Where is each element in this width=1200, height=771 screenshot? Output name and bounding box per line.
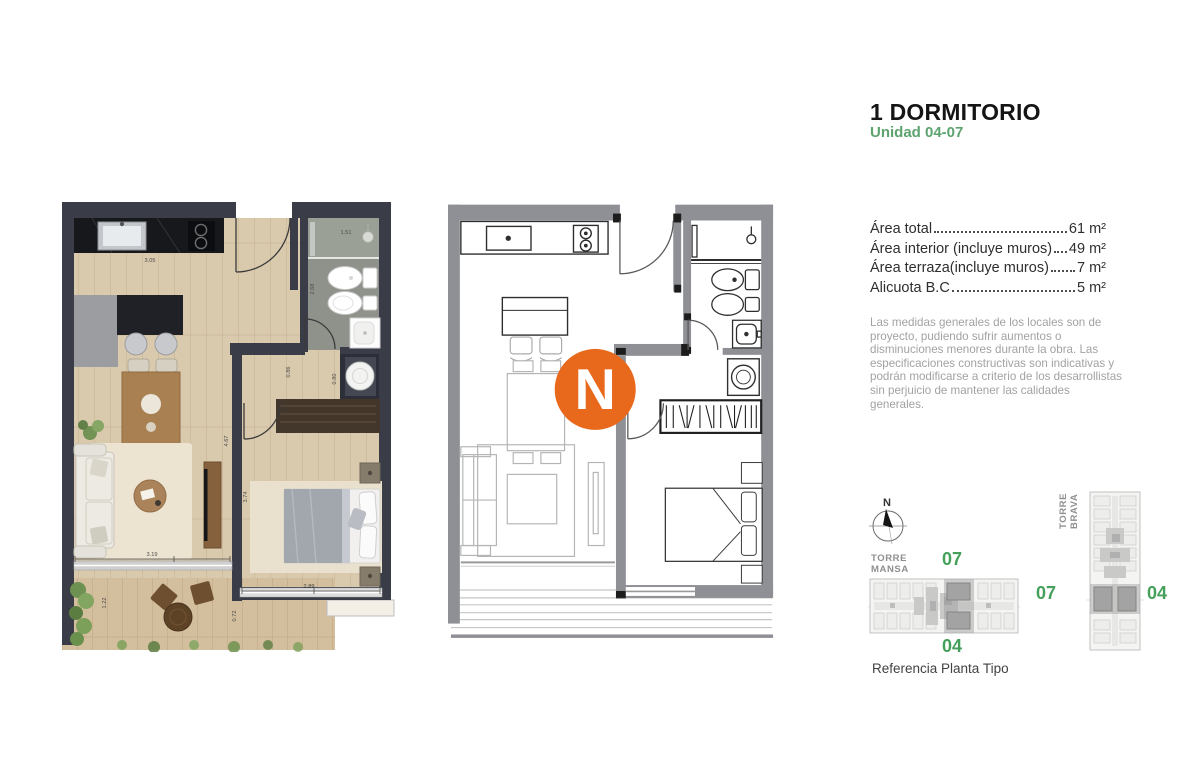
pillow-icon — [359, 526, 377, 559]
island — [502, 298, 567, 336]
nightstand — [741, 463, 762, 484]
shower-head-icon — [363, 232, 374, 243]
dim-laundry: 0.80 — [332, 374, 338, 385]
tv-icon — [204, 469, 208, 541]
terrace-edge — [451, 634, 773, 637]
unit-subtitle: Unidad 04-07 — [870, 124, 963, 141]
tower-mansa-label: TORRE MANSA — [871, 553, 909, 575]
area-label: Alicuota B.C — [870, 280, 950, 296]
page-title: 1 DORMITORIO — [870, 99, 1041, 126]
logo-letter: N — [575, 358, 616, 422]
reference-caption: Referencia Planta Tipo — [872, 661, 1009, 676]
area-label: Área interior (incluye muros) — [870, 241, 1052, 257]
dim-bath: 2.68 — [310, 284, 316, 295]
disclaimer-text: Las medidas generales de los locales son… — [870, 316, 1124, 411]
dotted-leader — [1054, 251, 1067, 253]
kitchen-cabinet — [74, 295, 118, 367]
washer-icon — [346, 362, 374, 390]
unit-07-brava: 07 — [1036, 583, 1056, 604]
terrace-table — [164, 603, 192, 631]
tower-mansa-diagram — [868, 575, 1020, 639]
area-row: Área total 61 m² — [870, 221, 1106, 241]
dim-terrace-depth: 1.22 — [102, 598, 108, 609]
dim-terrace-side: 0.72 — [232, 611, 238, 622]
bedroom — [660, 400, 762, 583]
dim-bedroom-length: 3.74 — [243, 492, 249, 503]
area-table: Área total 61 m² Área interior (incluye … — [870, 221, 1106, 299]
technical-floorplan: N — [448, 197, 778, 652]
unit-04-mansa: 04 — [942, 636, 962, 657]
unit-07-mansa: 07 — [942, 549, 962, 570]
stool-icon — [540, 337, 562, 354]
stool-icon — [155, 333, 177, 355]
bidet-icon — [712, 294, 744, 316]
tower-brava-label: TORRE BRAVA — [1058, 483, 1080, 529]
shower-bench — [310, 222, 315, 256]
compass: N — [867, 488, 913, 550]
dim-living-width: 3.19 — [147, 552, 158, 558]
shower-bench — [692, 225, 697, 257]
area-value: 49 m² — [1069, 241, 1106, 257]
unit-04-brava: 04 — [1147, 583, 1167, 604]
neighbor-terrace-outline — [327, 600, 394, 616]
brand-logo: N — [555, 349, 636, 430]
island — [117, 295, 183, 335]
area-value: 5 m² — [1077, 280, 1106, 296]
dining-area — [507, 361, 564, 464]
dotted-leader — [1051, 270, 1075, 272]
dim-shower: 1.51 — [341, 230, 352, 236]
dotted-leader — [934, 231, 1067, 233]
rendered-floorplan: 3.05 1.51 2.68 0.86 0.80 4.67 3.74 3.19 … — [62, 197, 396, 652]
highlighted-unit-04 — [947, 612, 970, 629]
area-label: Área terraza(incluye muros) — [870, 260, 1049, 276]
highlighted-unit-07 — [1094, 587, 1112, 611]
stool-icon — [125, 333, 147, 355]
laundry-alcove — [340, 352, 380, 400]
floorplan-sheet: 3.05 1.51 2.68 0.86 0.80 4.67 3.74 3.19 … — [0, 0, 1200, 771]
toilet-icon — [712, 269, 744, 291]
dim-kitchen: 3.05 — [145, 258, 156, 264]
area-value: 7 m² — [1077, 260, 1106, 276]
area-row: Alicuota B.C 5 m² — [870, 280, 1106, 300]
area-label: Área total — [870, 221, 932, 237]
kitchen — [461, 221, 608, 254]
laundry — [728, 359, 760, 396]
stool-icon — [510, 337, 532, 354]
highlighted-unit-04 — [1118, 587, 1136, 611]
closet — [660, 400, 761, 433]
pillow-icon — [741, 526, 756, 556]
toilet-icon — [328, 267, 362, 290]
area-row: Área interior (incluye muros) 49 m² — [870, 241, 1106, 261]
shower-head-icon — [747, 235, 756, 244]
dim-bedroom-width: 2.89 — [304, 584, 315, 590]
closet — [276, 399, 380, 433]
highlighted-unit-07 — [947, 583, 970, 600]
area-value: 61 m² — [1069, 221, 1106, 237]
dim-living-length: 4.67 — [224, 436, 230, 447]
tower-brava-diagram — [1086, 490, 1144, 654]
dim-hall: 0.86 — [286, 367, 292, 378]
nightstand — [741, 565, 762, 583]
area-row: Área terraza(incluye muros) 7 m² — [870, 260, 1106, 280]
compass-north-label: N — [883, 497, 891, 509]
pillow-icon — [741, 492, 756, 522]
dotted-leader — [952, 290, 1075, 292]
